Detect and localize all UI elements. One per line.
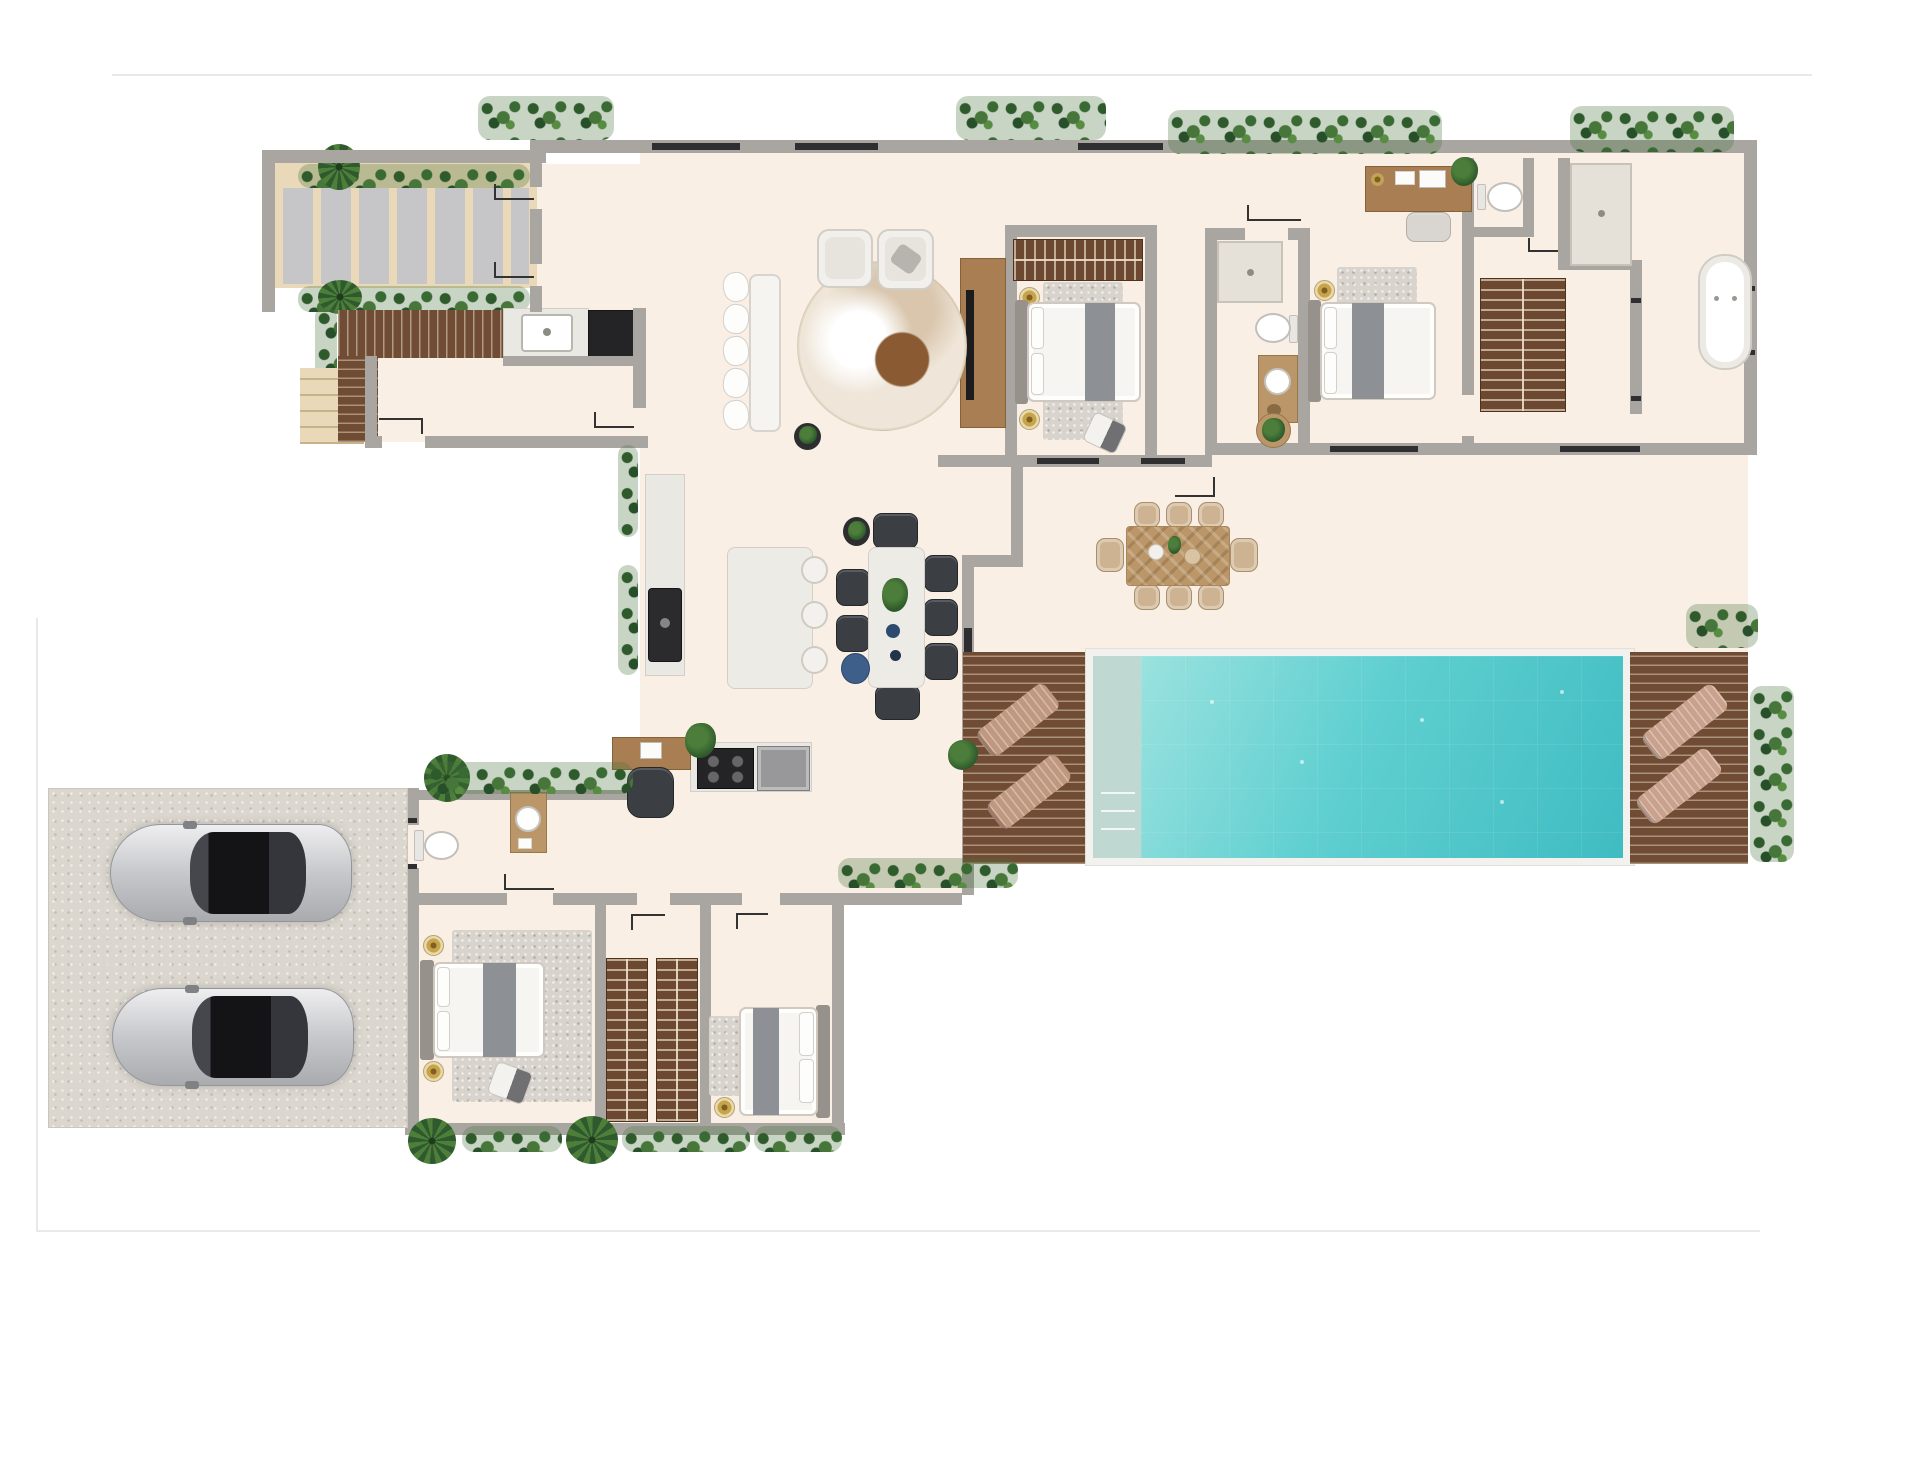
water-sparkle xyxy=(1560,690,1564,694)
pool-step-line xyxy=(1101,792,1135,794)
wardrobe xyxy=(1013,239,1143,281)
faucet-icon xyxy=(660,618,670,628)
hedge xyxy=(956,96,1106,140)
car xyxy=(112,988,354,1086)
papers xyxy=(1395,171,1415,185)
tv-icon xyxy=(966,290,974,400)
hedge xyxy=(754,1126,842,1152)
door-swing-icon xyxy=(494,184,534,200)
toilet xyxy=(424,831,459,860)
outdoor-chair xyxy=(1166,584,1192,610)
dining-chair xyxy=(924,555,958,592)
wall xyxy=(598,893,637,905)
outdoor-chair xyxy=(1198,584,1224,610)
window xyxy=(1078,143,1163,150)
car-mirror xyxy=(185,985,199,993)
wall-bath-master xyxy=(1630,268,1642,414)
desk-lamp-icon xyxy=(1371,173,1384,186)
bedside-lamp-icon xyxy=(714,1097,735,1118)
toilet-tank xyxy=(1477,184,1486,210)
wall-bedroom1-north xyxy=(1005,225,1157,237)
tub-faucet-icon xyxy=(1732,296,1737,301)
outdoor-chair xyxy=(1134,502,1160,528)
water-sparkle xyxy=(1420,718,1424,722)
water-sparkle xyxy=(1300,760,1304,764)
palm-tree-icon xyxy=(408,1118,456,1164)
round-sink xyxy=(1264,368,1291,395)
outdoor-dining-table xyxy=(1126,526,1230,586)
outdoor-armchair xyxy=(1096,538,1124,572)
car-cabin xyxy=(192,996,308,1078)
wall xyxy=(262,150,275,312)
wall xyxy=(408,893,507,905)
tub-drain-icon xyxy=(1714,296,1719,301)
plate-icon xyxy=(890,650,901,661)
hedge xyxy=(618,565,638,675)
floor-plan-canvas xyxy=(0,0,1920,1475)
round-basin xyxy=(515,806,541,832)
headboard xyxy=(816,1005,830,1118)
wall xyxy=(262,150,546,163)
pillow xyxy=(437,1011,450,1051)
pool-water xyxy=(1141,656,1623,858)
wall xyxy=(530,209,542,264)
hedge xyxy=(618,445,638,537)
door-swing-icon xyxy=(494,262,534,278)
hedge xyxy=(1168,110,1442,154)
bar-stool xyxy=(801,601,828,629)
window xyxy=(1330,446,1418,452)
water-sparkle xyxy=(1210,700,1214,704)
car xyxy=(110,824,352,922)
door-swing-icon xyxy=(1528,238,1558,252)
wall-jog xyxy=(1011,467,1023,567)
bedside-lamp-icon xyxy=(1314,280,1335,301)
photo-top-edge xyxy=(112,74,1812,76)
toilet xyxy=(1255,313,1291,343)
oven xyxy=(757,746,810,791)
pillow xyxy=(437,967,450,1007)
toilet-tank xyxy=(414,830,424,861)
wardrobe xyxy=(1480,278,1566,412)
wall-south-wing xyxy=(1205,443,1757,455)
wall-closet-west xyxy=(595,905,606,1123)
window xyxy=(1037,458,1099,464)
photo-left-edge xyxy=(36,618,38,1232)
wall xyxy=(425,436,648,448)
hedge xyxy=(622,1126,750,1152)
wardrobe xyxy=(606,958,648,1122)
bedside-lamp-icon xyxy=(1019,409,1040,430)
palm-tree-icon xyxy=(566,1116,618,1164)
outdoor-chair xyxy=(1166,502,1192,528)
bedside-lamp-icon xyxy=(423,935,444,956)
bowl-icon xyxy=(1184,548,1201,565)
wall xyxy=(503,356,645,366)
car-mirror xyxy=(183,917,197,925)
wall xyxy=(365,356,377,448)
door-swing-icon xyxy=(736,913,768,929)
hedge xyxy=(838,858,1018,888)
bed-runner xyxy=(1352,303,1384,399)
pool-deck-left xyxy=(963,652,1089,864)
dining-table xyxy=(868,547,925,688)
hedge xyxy=(478,96,614,140)
bbq-grill xyxy=(588,310,634,358)
dining-chair xyxy=(875,685,920,720)
bed-runner xyxy=(1085,303,1115,401)
wall-bedroom4-east xyxy=(832,905,844,1135)
window xyxy=(795,143,878,150)
hedge xyxy=(1570,106,1734,152)
dining-chair xyxy=(836,569,870,606)
bed xyxy=(1027,302,1141,402)
bar-stool xyxy=(801,646,828,674)
hedge xyxy=(427,762,633,794)
toilet xyxy=(1487,182,1523,212)
rug xyxy=(1337,267,1417,305)
bedside-lamp-icon xyxy=(423,1061,444,1082)
laptop-icon xyxy=(1419,170,1446,188)
wall xyxy=(780,893,962,905)
window xyxy=(1141,458,1185,464)
wall xyxy=(1462,436,1474,448)
plate-icon xyxy=(1148,544,1164,560)
hedge xyxy=(1686,604,1758,648)
headboard xyxy=(420,960,434,1060)
wall xyxy=(670,893,700,905)
window xyxy=(1560,446,1640,452)
pillow xyxy=(1324,352,1337,394)
floor-pouf xyxy=(841,653,870,684)
pillow xyxy=(1031,307,1044,349)
dining-chair xyxy=(836,615,870,652)
towel xyxy=(518,838,532,849)
outdoor-deck xyxy=(338,310,504,358)
wall-shower-west xyxy=(1558,158,1570,270)
dining-chair xyxy=(924,643,958,680)
plate-icon xyxy=(886,624,900,638)
outdoor-chair xyxy=(1134,584,1160,610)
outdoor-armchair xyxy=(1230,538,1258,572)
armchair-seat xyxy=(825,237,865,279)
pool-step-line xyxy=(1101,828,1135,830)
wall xyxy=(1205,228,1245,240)
floor-entry xyxy=(537,164,647,440)
wall-bedroom1-east xyxy=(1145,225,1157,455)
door-jamb xyxy=(1631,396,1641,401)
wall-wc-east xyxy=(1523,158,1534,237)
shower-drain-icon xyxy=(1598,210,1605,217)
dining-chair xyxy=(873,513,918,549)
wall xyxy=(700,893,742,905)
floor-terrace xyxy=(963,455,1748,652)
hedge xyxy=(462,1126,562,1152)
door-swing-icon xyxy=(1247,205,1301,221)
pillow xyxy=(1031,353,1044,395)
pool-step-line xyxy=(1101,810,1135,812)
faucet-icon xyxy=(543,328,551,336)
shower-drain-icon xyxy=(1247,269,1254,276)
photo-bottom-edge xyxy=(36,1230,1760,1232)
desk-chair xyxy=(1406,212,1451,242)
wall xyxy=(530,286,542,312)
door-swing-icon xyxy=(379,418,423,434)
wall-entry-east xyxy=(633,308,646,408)
bathtub xyxy=(1698,254,1752,370)
pillow xyxy=(799,1012,814,1056)
door-jamb xyxy=(1631,298,1641,303)
outdoor-chair xyxy=(1198,502,1224,528)
car-mirror xyxy=(183,821,197,829)
door-swing-icon xyxy=(594,412,634,428)
pillow xyxy=(799,1059,814,1103)
office-chair xyxy=(627,767,674,818)
wardrobe xyxy=(656,958,698,1122)
bed-runner xyxy=(753,1008,779,1115)
wall-bath1-west xyxy=(1205,228,1217,443)
wall xyxy=(553,893,598,905)
hedge xyxy=(1750,686,1794,862)
car-mirror xyxy=(185,1081,199,1089)
window xyxy=(652,143,740,150)
patio-stone-slabs xyxy=(283,188,529,284)
bed-runner xyxy=(483,963,516,1057)
door-swing-icon xyxy=(1175,477,1215,497)
door-swing-icon xyxy=(504,874,554,890)
sofa xyxy=(749,274,781,432)
door-swing-icon xyxy=(631,914,665,930)
pillow xyxy=(1324,307,1337,349)
bar-stool xyxy=(801,556,828,584)
laptop-icon xyxy=(640,742,662,759)
water-sparkle xyxy=(1500,800,1504,804)
car-cabin xyxy=(190,832,306,914)
dining-chair xyxy=(924,599,958,636)
